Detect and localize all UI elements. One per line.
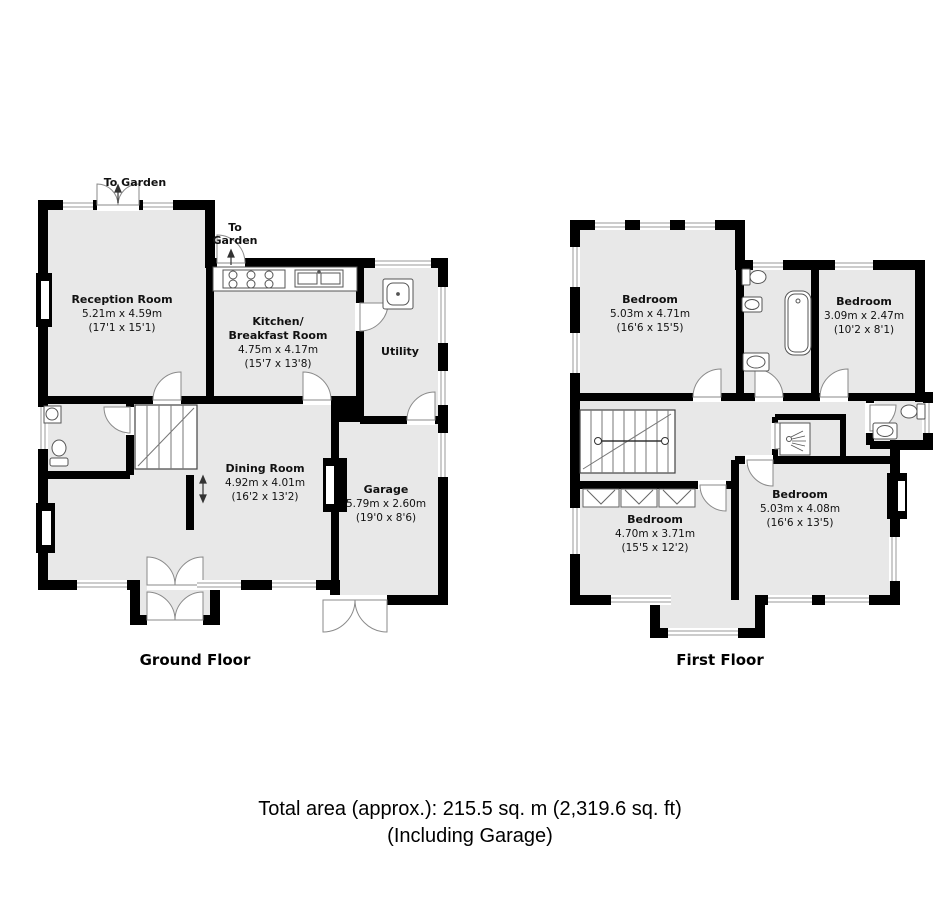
first-floor-plan-svg bbox=[565, 205, 935, 645]
stairs-icon bbox=[135, 405, 197, 469]
window-icon bbox=[570, 508, 580, 554]
window-icon bbox=[835, 260, 873, 270]
wall-junction bbox=[335, 396, 360, 422]
window-icon bbox=[668, 628, 738, 638]
window-icon bbox=[753, 260, 783, 270]
window-icon bbox=[77, 580, 127, 590]
shower-icon bbox=[780, 423, 810, 455]
corner-sink-icon bbox=[44, 406, 61, 423]
kitchen-counter bbox=[213, 267, 357, 291]
ground-floor-plan: To Garden To Garden Reception Room 5.21m… bbox=[35, 175, 455, 645]
window-icon bbox=[197, 580, 241, 590]
sink-icon bbox=[742, 297, 762, 312]
window-icon bbox=[640, 220, 670, 230]
window-icon bbox=[595, 220, 625, 230]
kitchen-sink-icon bbox=[295, 270, 343, 287]
toilet-icon bbox=[742, 269, 766, 285]
window-icon bbox=[570, 333, 580, 373]
first-floor-plan: Bedroom 5.03m x 4.71m (16'6 x 15'5) Bedr… bbox=[565, 205, 935, 645]
window-icon bbox=[685, 220, 715, 230]
window-icon bbox=[375, 258, 431, 268]
window-icon bbox=[272, 580, 316, 590]
window-icon bbox=[825, 595, 869, 605]
sink-icon bbox=[873, 423, 897, 439]
garden-french-door-icon bbox=[97, 184, 118, 205]
window-icon bbox=[438, 287, 448, 343]
window-icon bbox=[570, 247, 580, 287]
floorplan-page: To Garden To Garden Reception Room 5.21m… bbox=[0, 0, 940, 921]
total-area-line2: (Including Garage) bbox=[0, 823, 940, 850]
total-area-text: Total area (approx.): 215.5 sq. m (2,319… bbox=[0, 796, 940, 850]
window-icon bbox=[438, 371, 448, 405]
window-icon bbox=[611, 595, 671, 605]
wardrobe-icons bbox=[583, 489, 695, 507]
chimney-breasts bbox=[887, 473, 907, 519]
first-floor-caption: First Floor bbox=[635, 651, 805, 669]
total-area-line1: Total area (approx.): 215.5 sq. m (2,319… bbox=[0, 796, 940, 823]
garage-door-icon bbox=[355, 600, 387, 632]
ground-floor-plan-svg bbox=[35, 175, 455, 645]
hob-icon bbox=[223, 270, 285, 288]
window-icon bbox=[438, 433, 448, 477]
window-icon bbox=[889, 537, 900, 581]
utility-sink-icon bbox=[383, 279, 413, 309]
toilet-icon bbox=[901, 404, 925, 419]
garden-french-door-icon bbox=[118, 184, 139, 205]
pedestal-sink-icon bbox=[743, 353, 769, 371]
window-icon bbox=[768, 595, 812, 605]
window-icon bbox=[143, 200, 173, 210]
window-icon bbox=[63, 200, 93, 210]
ground-floor-caption: Ground Floor bbox=[110, 651, 280, 669]
stairs-icon bbox=[580, 410, 675, 473]
bathtub-icon bbox=[785, 291, 811, 355]
garage-door-icon bbox=[323, 600, 355, 632]
